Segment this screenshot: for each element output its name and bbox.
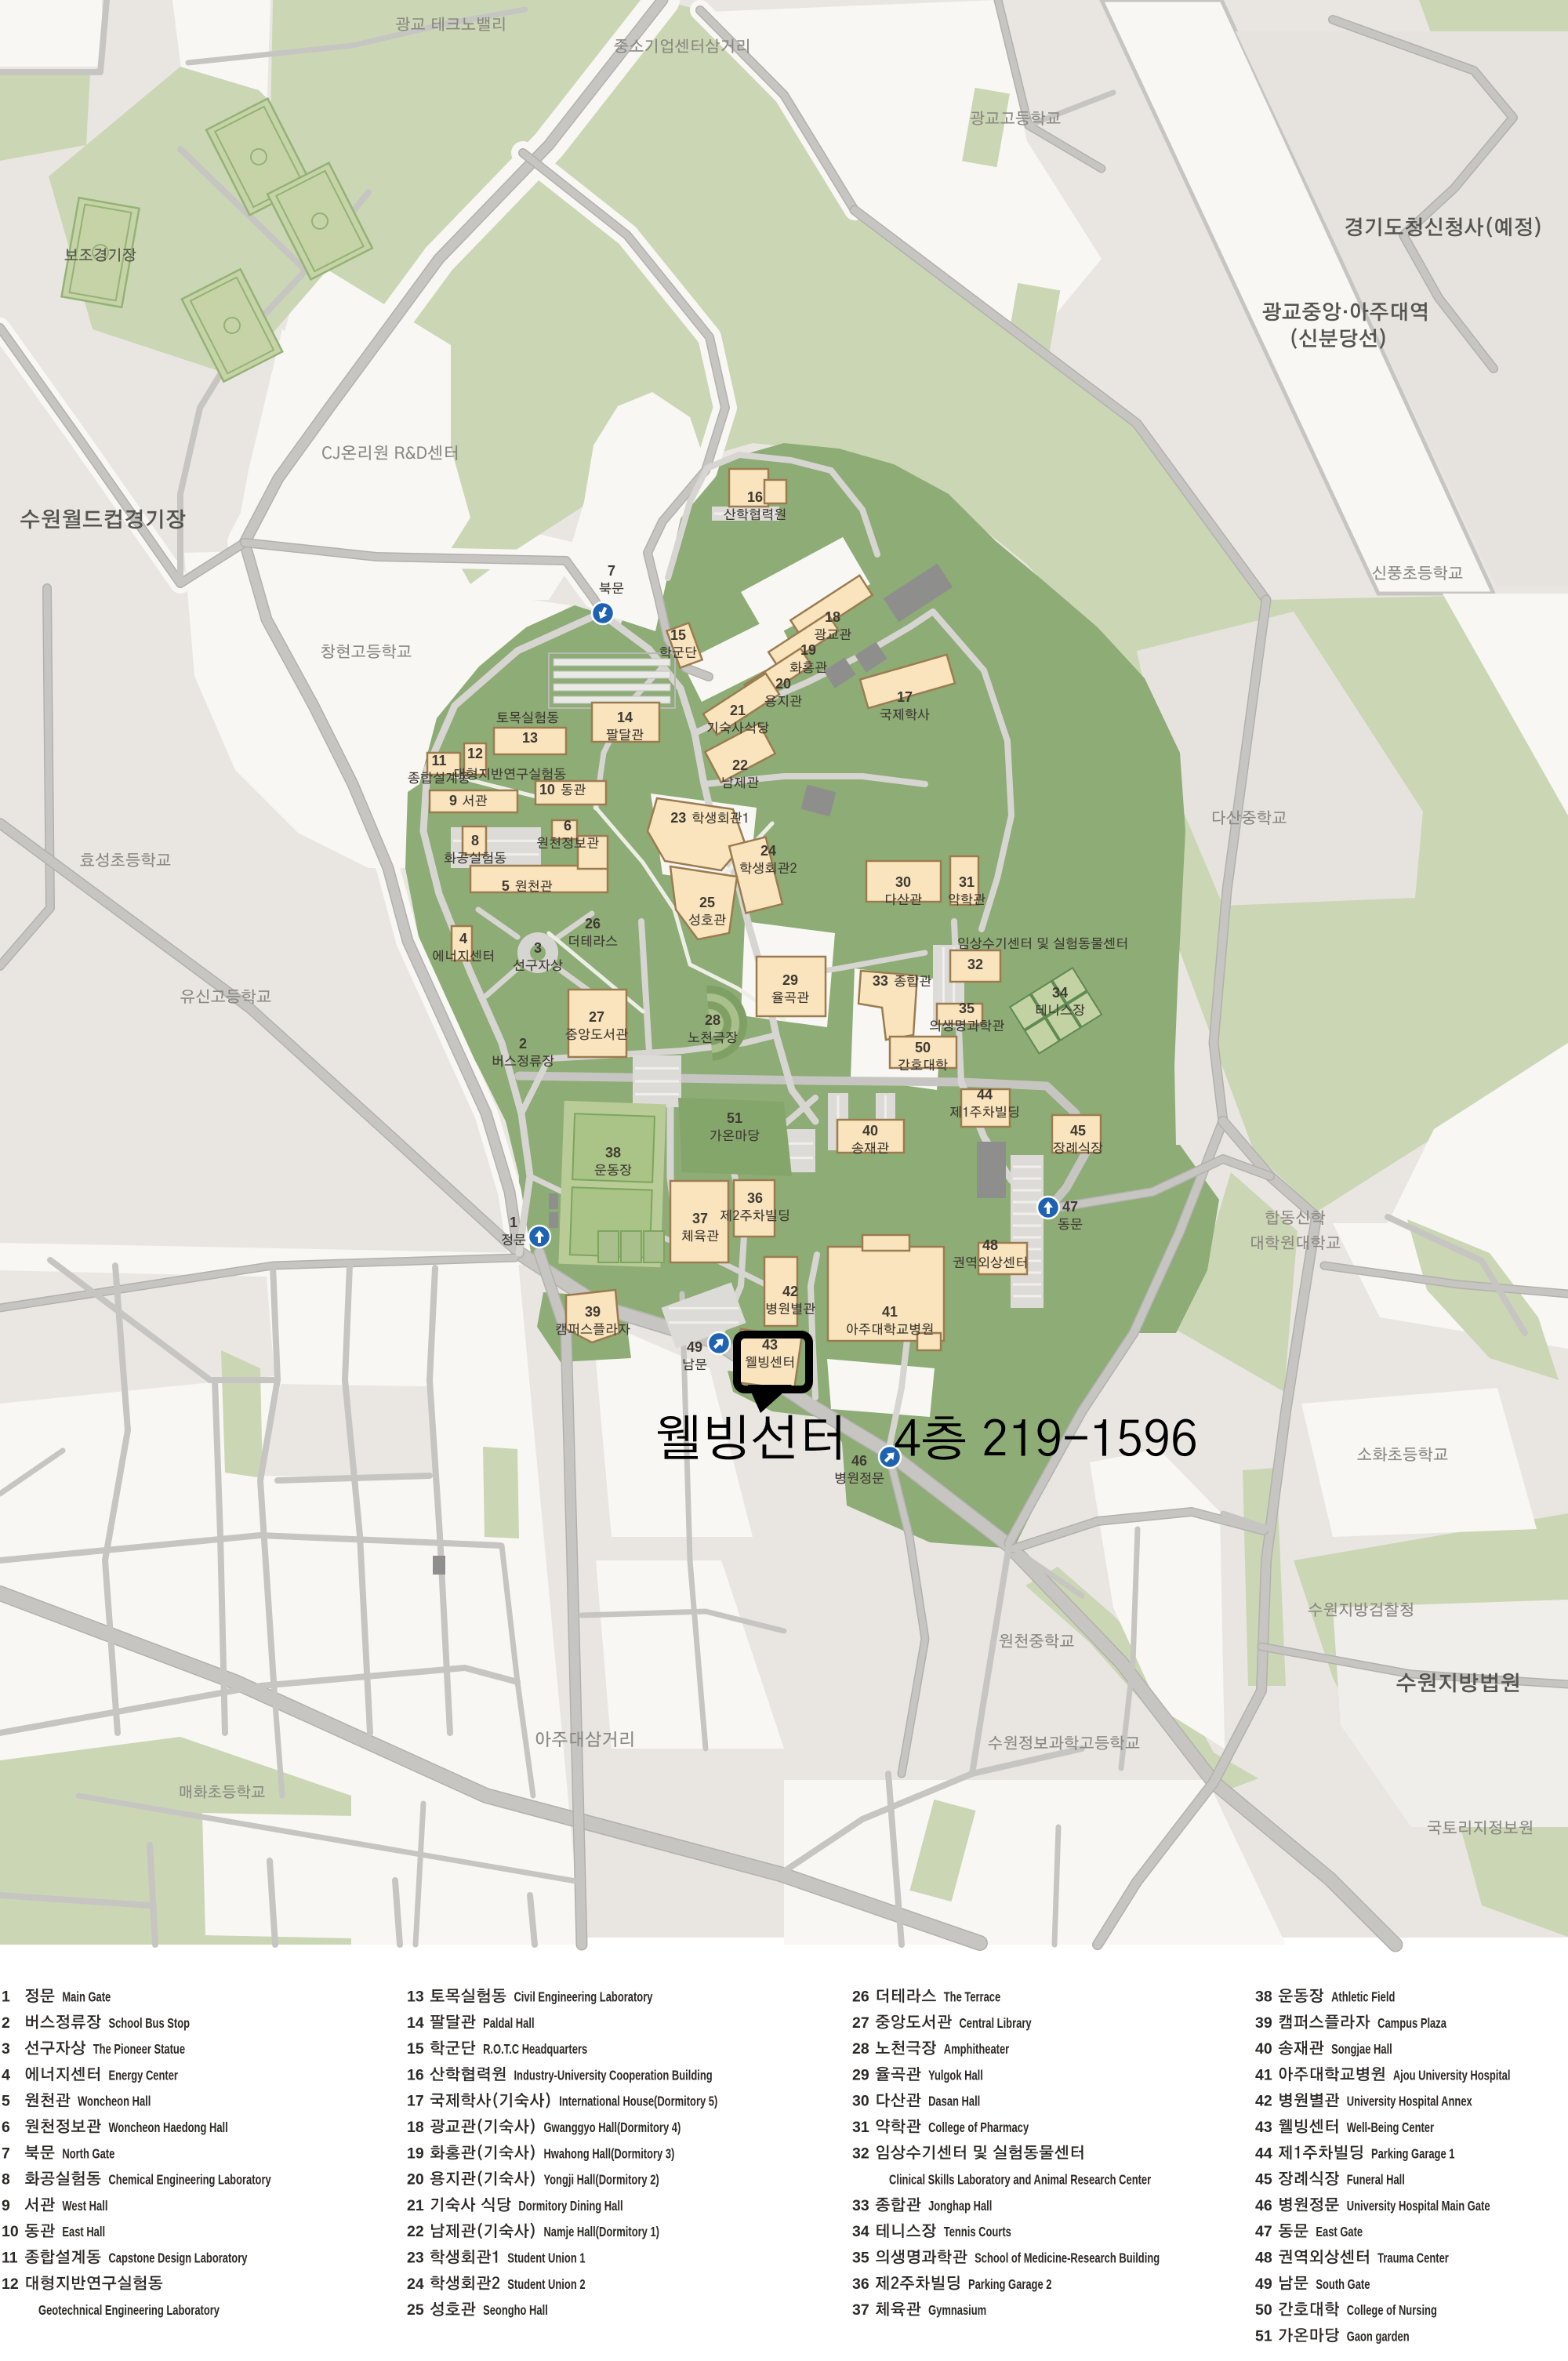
svg-text:West Hall: West Hall <box>62 2199 107 2214</box>
svg-text:37: 37 <box>852 2301 869 2319</box>
svg-text:16: 16 <box>747 489 763 505</box>
svg-text:3: 3 <box>534 940 542 956</box>
svg-text:40: 40 <box>1255 2040 1272 2058</box>
svg-text:7: 7 <box>608 563 615 579</box>
svg-text:Parking Garage 2: Parking Garage 2 <box>968 2277 1052 2293</box>
svg-text:6: 6 <box>2 2119 10 2136</box>
svg-text:8: 8 <box>2 2171 10 2188</box>
svg-text:1: 1 <box>2 1989 10 2006</box>
svg-text:33: 33 <box>852 2197 869 2214</box>
svg-text:12: 12 <box>467 746 483 761</box>
svg-text:10: 10 <box>539 782 555 797</box>
svg-text:Chemical Engineering Laborator: Chemical Engineering Laboratory <box>108 2173 270 2188</box>
svg-text:College of Nursing: College of Nursing <box>1347 2303 1437 2319</box>
svg-text:Main Gate: Main Gate <box>62 1990 111 2006</box>
svg-text:38: 38 <box>1255 1989 1272 2006</box>
svg-text:Tennis Courts: Tennis Courts <box>944 2225 1011 2240</box>
svg-text:39: 39 <box>1255 2014 1272 2032</box>
svg-text:East Gate: East Gate <box>1316 2225 1363 2240</box>
svg-text:Athletic Field: Athletic Field <box>1331 1990 1395 2006</box>
svg-text:32: 32 <box>852 2145 869 2162</box>
svg-text:27: 27 <box>852 2014 869 2032</box>
svg-text:School of Medicine-Research Bu: School of Medicine-Research Building <box>975 2251 1160 2267</box>
svg-text:7: 7 <box>2 2145 10 2162</box>
svg-text:40: 40 <box>862 1123 878 1139</box>
svg-text:4: 4 <box>459 931 467 946</box>
svg-text:University Hospital Annex: University Hospital Annex <box>1347 2094 1472 2110</box>
svg-text:Gymnasium: Gymnasium <box>928 2303 986 2319</box>
svg-text:Industry-University Cooperatio: Industry-University Cooperation Building <box>514 2068 712 2083</box>
svg-text:Campus Plaza: Campus Plaza <box>1377 2016 1446 2032</box>
svg-text:North Gate: North Gate <box>62 2146 114 2162</box>
svg-text:Namje Hall(Dormitory 1): Namje Hall(Dormitory 1) <box>543 2225 659 2240</box>
svg-text:42: 42 <box>1255 2093 1272 2110</box>
svg-text:23: 23 <box>670 810 686 826</box>
svg-text:44: 44 <box>1255 2145 1272 2162</box>
svg-text:15: 15 <box>407 2040 424 2058</box>
svg-text:12: 12 <box>2 2276 19 2293</box>
svg-text:Civil Engineering Laboratory: Civil Engineering Laboratory <box>514 1990 652 2006</box>
svg-text:17: 17 <box>897 689 913 705</box>
svg-text:Woncheon Hall: Woncheon Hall <box>78 2094 151 2110</box>
svg-text:28: 28 <box>852 2040 869 2058</box>
svg-text:Yulgok Hall: Yulgok Hall <box>928 2068 983 2083</box>
svg-text:43: 43 <box>762 1337 778 1353</box>
svg-text:International House(Dormitory: International House(Dormitory 5) <box>559 2094 717 2110</box>
svg-text:19: 19 <box>800 642 816 658</box>
svg-text:22: 22 <box>407 2223 424 2240</box>
svg-text:42: 42 <box>782 1284 798 1299</box>
svg-text:44: 44 <box>977 1087 993 1102</box>
svg-text:3: 3 <box>2 2040 10 2058</box>
svg-text:5: 5 <box>2 2093 10 2110</box>
svg-text:51: 51 <box>1255 2327 1272 2345</box>
svg-text:4: 4 <box>2 2066 10 2083</box>
svg-text:46: 46 <box>1255 2197 1272 2214</box>
svg-text:15: 15 <box>670 627 686 643</box>
svg-text:Funeral Hall: Funeral Hall <box>1347 2173 1405 2188</box>
svg-text:Dormitory Dining Hall: Dormitory Dining Hall <box>518 2199 622 2214</box>
svg-text:50: 50 <box>915 1040 931 1055</box>
svg-text:28: 28 <box>705 1012 720 1028</box>
svg-text:13: 13 <box>522 730 538 746</box>
svg-text:24: 24 <box>407 2276 424 2293</box>
svg-text:14: 14 <box>617 710 633 725</box>
svg-text:21: 21 <box>407 2197 424 2214</box>
svg-text:39: 39 <box>585 1304 601 1320</box>
svg-text:23: 23 <box>407 2250 424 2267</box>
svg-text:Hwahong Hall(Dormitory 3): Hwahong Hall(Dormitory 3) <box>543 2146 674 2162</box>
svg-text:36: 36 <box>747 1190 763 1206</box>
svg-text:49: 49 <box>687 1339 702 1355</box>
svg-text:Gwanggyo Hall(Dormitory 4): Gwanggyo Hall(Dormitory 4) <box>543 2120 681 2136</box>
svg-text:30: 30 <box>852 2093 869 2110</box>
svg-text:22: 22 <box>732 757 748 773</box>
svg-text:8: 8 <box>471 833 479 848</box>
svg-text:38: 38 <box>605 1145 621 1161</box>
svg-text:2: 2 <box>519 1036 527 1052</box>
svg-text:18: 18 <box>407 2119 424 2136</box>
svg-text:30: 30 <box>895 874 911 890</box>
svg-text:The Terrace: The Terrace <box>944 1990 1001 2006</box>
svg-text:Geotechnical Engineering Labor: Geotechnical Engineering Laboratory <box>38 2303 220 2319</box>
svg-text:26: 26 <box>585 916 601 932</box>
svg-text:24: 24 <box>760 843 776 859</box>
svg-text:36: 36 <box>852 2276 869 2293</box>
svg-text:45: 45 <box>1070 1123 1086 1139</box>
svg-text:Dasan Hall: Dasan Hall <box>928 2094 980 2110</box>
svg-text:Well-Being Center: Well-Being Center <box>1347 2120 1434 2136</box>
svg-text:20: 20 <box>775 676 791 692</box>
svg-text:5: 5 <box>502 878 510 894</box>
svg-text:45: 45 <box>1255 2171 1272 2188</box>
svg-text:37: 37 <box>692 1211 708 1226</box>
svg-text:35: 35 <box>852 2250 869 2267</box>
svg-text:6: 6 <box>564 818 572 834</box>
svg-text:Clinical Skills Laboratory and: Clinical Skills Laboratory and Animal Re… <box>889 2173 1151 2188</box>
svg-text:Ajou University Hospital: Ajou University Hospital <box>1393 2068 1511 2083</box>
svg-text:43: 43 <box>1255 2119 1272 2136</box>
svg-text:Capstone Design Laboratory: Capstone Design Laboratory <box>108 2251 247 2267</box>
svg-text:10: 10 <box>2 2223 19 2240</box>
svg-text:East Hall: East Hall <box>62 2225 105 2240</box>
svg-text:47: 47 <box>1255 2223 1272 2240</box>
svg-text:46: 46 <box>851 1453 867 1469</box>
svg-text:1: 1 <box>510 1215 517 1230</box>
svg-text:11: 11 <box>2 2250 18 2267</box>
svg-text:25: 25 <box>407 2301 424 2319</box>
svg-text:51: 51 <box>727 1110 742 1126</box>
svg-text:College of Pharmacy: College of Pharmacy <box>928 2120 1029 2136</box>
svg-text:35: 35 <box>959 1001 975 1016</box>
svg-text:48: 48 <box>1255 2250 1272 2267</box>
svg-text:31: 31 <box>959 874 975 890</box>
svg-text:Central Library: Central Library <box>959 2016 1031 2032</box>
svg-text:Gaon garden: Gaon garden <box>1347 2329 1410 2345</box>
svg-text:11: 11 <box>431 753 446 768</box>
svg-text:18: 18 <box>825 609 840 625</box>
svg-text:27: 27 <box>589 1009 604 1025</box>
svg-text:32: 32 <box>967 957 983 972</box>
svg-text:34: 34 <box>1052 985 1068 1001</box>
svg-text:2: 2 <box>2 2014 10 2032</box>
svg-text:16: 16 <box>407 2066 424 2083</box>
svg-text:The Pioneer Statue: The Pioneer Statue <box>93 2042 186 2058</box>
svg-text:41: 41 <box>1255 2066 1272 2083</box>
svg-text:31: 31 <box>852 2119 869 2136</box>
svg-text:21: 21 <box>730 703 746 718</box>
svg-text:47: 47 <box>1062 1199 1078 1215</box>
svg-text:Yongji Hall(Dormitory 2): Yongji Hall(Dormitory 2) <box>543 2173 659 2188</box>
svg-text:Seongho Hall: Seongho Hall <box>483 2303 548 2319</box>
svg-text:Jonghap Hall: Jonghap Hall <box>928 2199 992 2214</box>
svg-text:25: 25 <box>699 895 715 910</box>
svg-text:Woncheon Haedong Hall: Woncheon Haedong Hall <box>108 2120 227 2136</box>
svg-text:29: 29 <box>852 2066 869 2083</box>
svg-text:49: 49 <box>1255 2276 1272 2293</box>
svg-text:Paldal Hall: Paldal Hall <box>483 2016 534 2032</box>
svg-text:20: 20 <box>407 2171 424 2188</box>
svg-text:Parking Garage 1: Parking Garage 1 <box>1371 2146 1455 2162</box>
svg-text:17: 17 <box>407 2093 424 2110</box>
svg-text:School Bus Stop: School Bus Stop <box>108 2016 190 2032</box>
svg-text:41: 41 <box>882 1304 898 1320</box>
svg-text:Songjae Hall: Songjae Hall <box>1331 2042 1392 2058</box>
svg-text:University Hospital Main Gate: University Hospital Main Gate <box>1347 2199 1490 2214</box>
svg-text:Student Union 1: Student Union 1 <box>507 2251 586 2267</box>
svg-text:48: 48 <box>982 1237 998 1253</box>
svg-text:50: 50 <box>1255 2301 1272 2319</box>
svg-text:13: 13 <box>407 1989 424 2006</box>
svg-text:19: 19 <box>407 2145 424 2162</box>
svg-text:9: 9 <box>449 793 457 808</box>
svg-text:Trauma Center: Trauma Center <box>1377 2251 1449 2267</box>
svg-text:14: 14 <box>407 2014 424 2032</box>
svg-text:33: 33 <box>873 973 888 989</box>
svg-text:29: 29 <box>782 972 798 988</box>
svg-text:Amphitheater: Amphitheater <box>944 2042 1009 2058</box>
svg-text:Energy Center: Energy Center <box>108 2068 178 2083</box>
svg-text:34: 34 <box>852 2223 869 2240</box>
svg-text:9: 9 <box>2 2197 10 2214</box>
svg-text:R.O.T.C Headquarters: R.O.T.C Headquarters <box>483 2042 587 2058</box>
svg-text:South Gate: South Gate <box>1316 2277 1370 2293</box>
svg-text:26: 26 <box>852 1989 869 2006</box>
svg-text:Student Union 2: Student Union 2 <box>507 2277 586 2293</box>
